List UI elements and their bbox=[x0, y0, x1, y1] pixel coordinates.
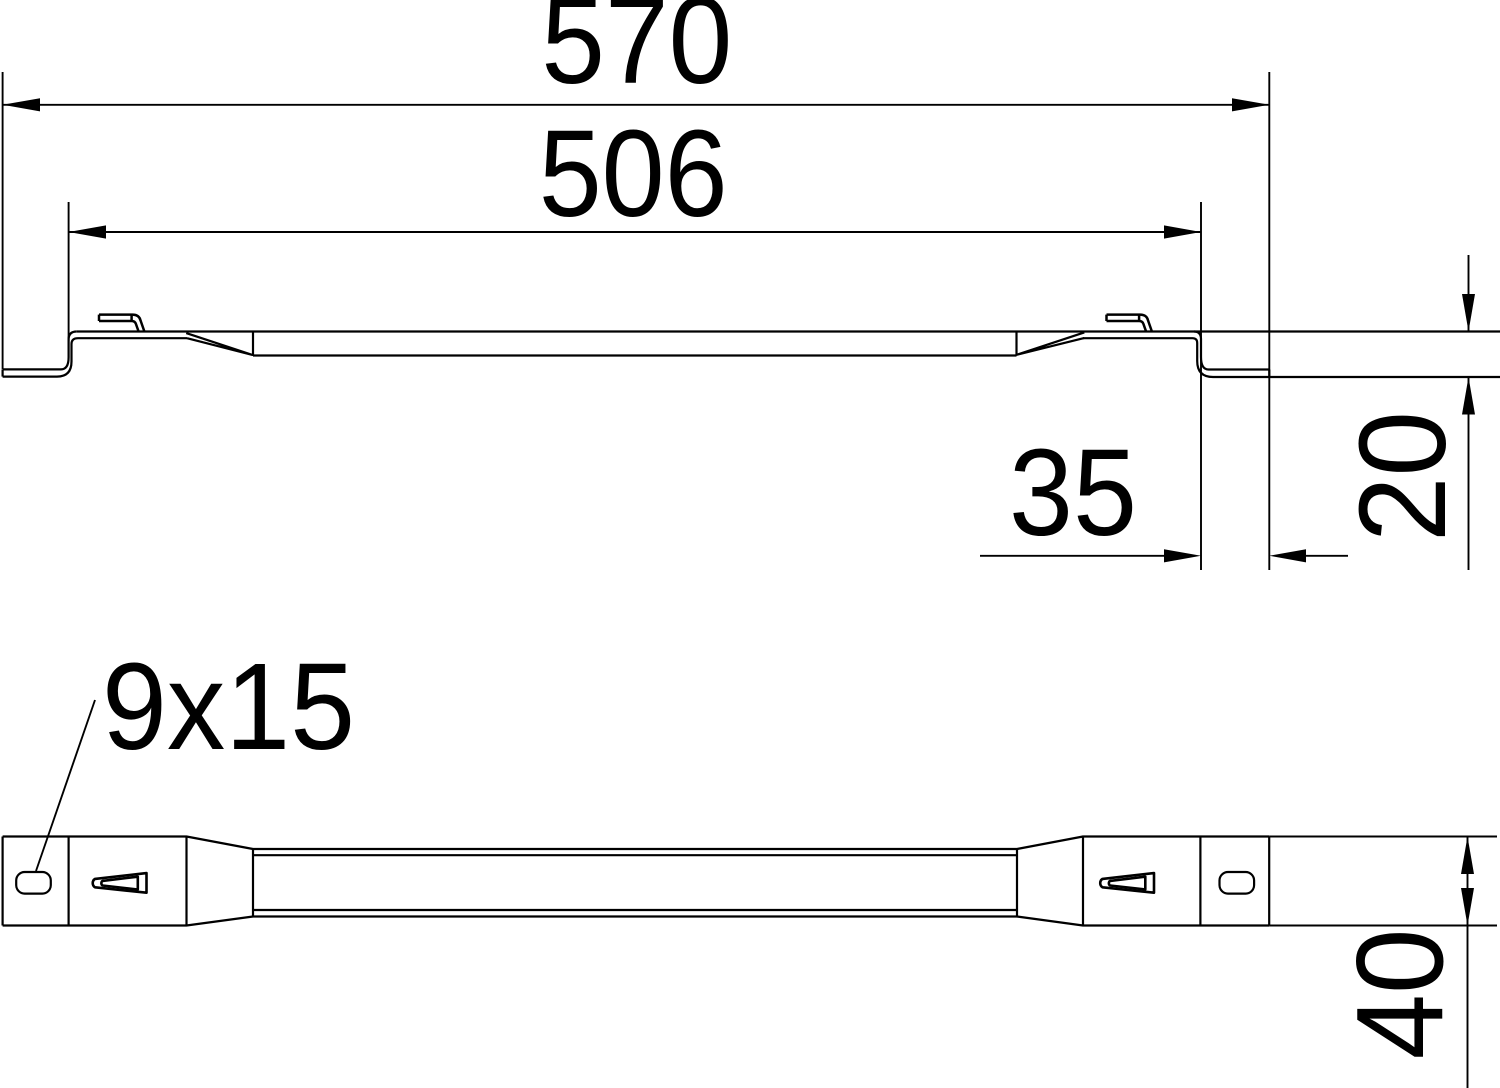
svg-text:9x15: 9x15 bbox=[102, 639, 355, 776]
svg-text:35: 35 bbox=[1009, 425, 1137, 562]
svg-text:20: 20 bbox=[1335, 411, 1472, 542]
svg-text:506: 506 bbox=[539, 106, 728, 243]
svg-text:570: 570 bbox=[541, 0, 732, 110]
svg-text:40: 40 bbox=[1333, 929, 1470, 1060]
